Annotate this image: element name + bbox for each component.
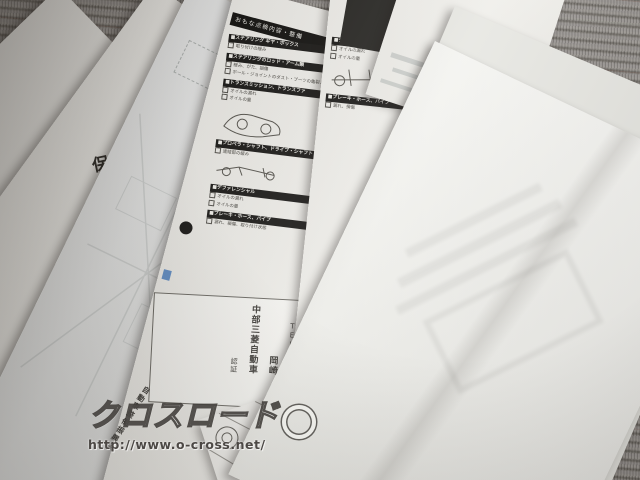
cert-label: 認証 [229, 357, 240, 374]
watermark-url: http://www.o-cross.net/ [88, 437, 468, 452]
check-item: 取り付けの緩み [235, 44, 266, 53]
blue-stamp-mark [161, 269, 171, 281]
gearbox-sketch [217, 101, 291, 143]
checkbox [215, 147, 222, 154]
checkbox [221, 93, 228, 100]
watermark: クロスロード http://www.o-cross.net/ [88, 390, 468, 452]
checkbox [331, 45, 338, 52]
checkbox [209, 192, 216, 199]
round-stamp-mark [178, 220, 194, 236]
checkbox [208, 199, 215, 206]
checkbox [224, 68, 231, 75]
checkbox [330, 52, 337, 59]
watermark-logo-text: クロスロード [88, 398, 280, 434]
check-item: オイルの量 [216, 202, 238, 210]
shop-name: 中部三菱自動車 [246, 304, 263, 375]
watermark-ring-icon [282, 405, 316, 439]
checkbox [225, 60, 232, 67]
checkbox [325, 101, 332, 108]
checkbox [206, 218, 213, 225]
photo-of-documents-on-seat: 箇所 保証書 誠にありがとうござい を行い、万全を期し 整備作業が原因で [0, 0, 640, 480]
checkbox [222, 86, 229, 93]
check-item: 漏れ、損傷 [333, 104, 355, 111]
checkbox [227, 42, 234, 49]
